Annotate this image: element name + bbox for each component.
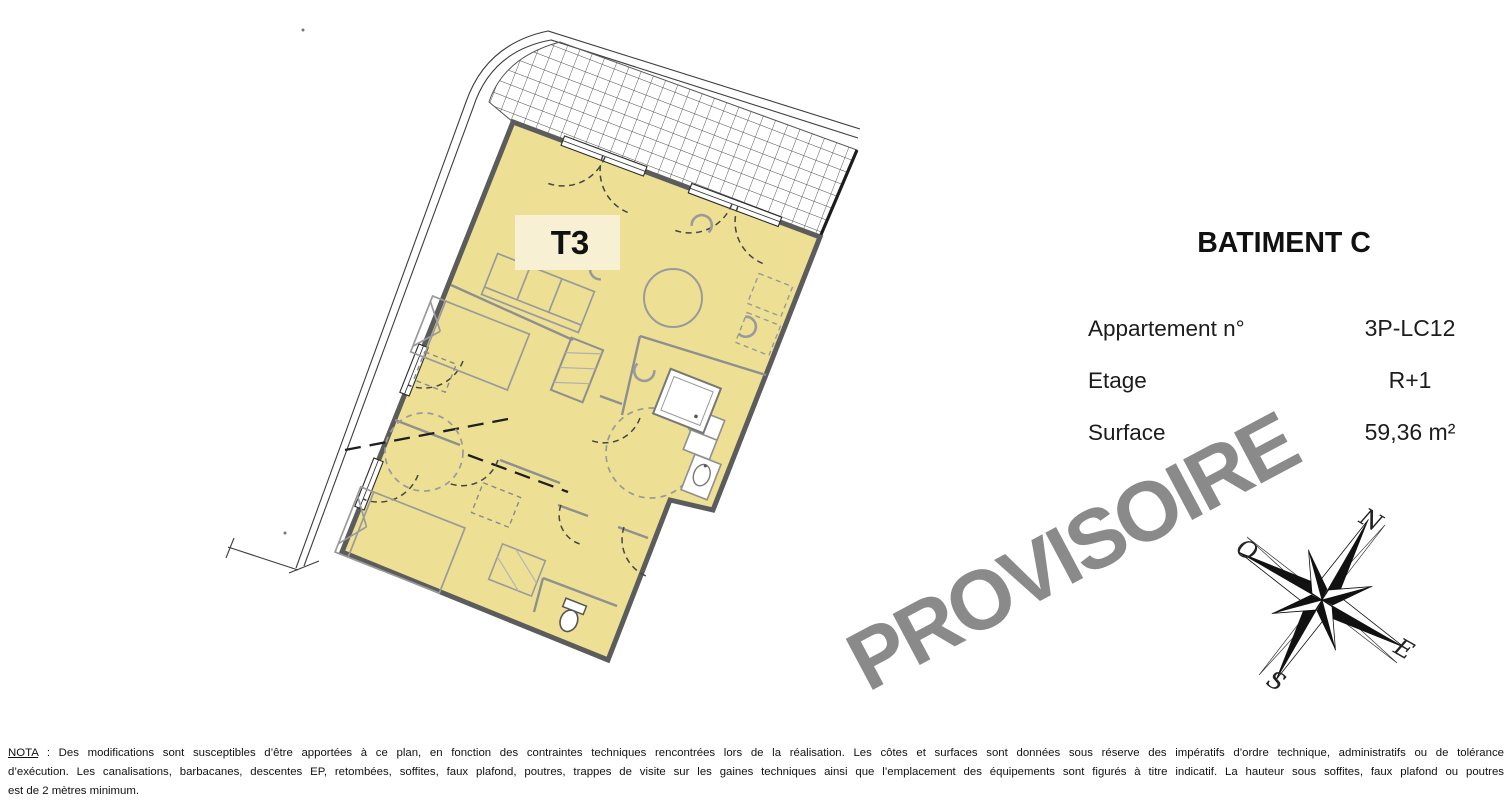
info-row-surface: Surface 59,36 m² [1088,419,1480,448]
nota-disclaimer: NOTA : Des modifications sont susceptibl… [8,744,1504,801]
nota-line-2: d’exécution. Les canalisations, barbacan… [8,763,1504,782]
apartment-number-value: 3P-LC12 [1340,315,1480,342]
floor-label: Etage [1088,368,1147,394]
nota-label: NOTA [8,747,38,759]
compass-letter-south: S [1262,665,1290,697]
info-row-apartment: Appartement n° 3P-LC12 [1088,315,1480,344]
apartment-number-label: Appartement n° [1088,316,1245,342]
info-row-floor: Etage R+1 [1088,367,1480,396]
unit-label: T3 [551,224,590,261]
floor-value: R+1 [1340,367,1480,394]
compass-letter-east: E [1389,632,1419,666]
info-rows: Appartement n° 3P-LC12 Etage R+1 Surface… [1088,315,1480,471]
surface-label: Surface [1088,420,1166,446]
unit-label-box: T3 [515,215,620,270]
surface-value: 59,36 m² [1340,419,1480,446]
plan-dot [302,29,305,32]
dimension-dot [284,532,287,535]
nota-line-1: NOTA : Des modifications sont susceptibl… [8,744,1504,763]
info-panel: BATIMENT C Appartement n° 3P-LC12 Etage … [1085,227,1483,260]
nota-line-3: est de 2 mètres minimum. [8,782,1504,801]
nota-line-1-text: : Des modifications sont susceptibles d’… [38,747,1504,759]
floor-plan-sheet: { "plan": { "unit_label": "T3", "floor_f… [0,0,1510,800]
building-title: BATIMENT C [1085,227,1483,260]
